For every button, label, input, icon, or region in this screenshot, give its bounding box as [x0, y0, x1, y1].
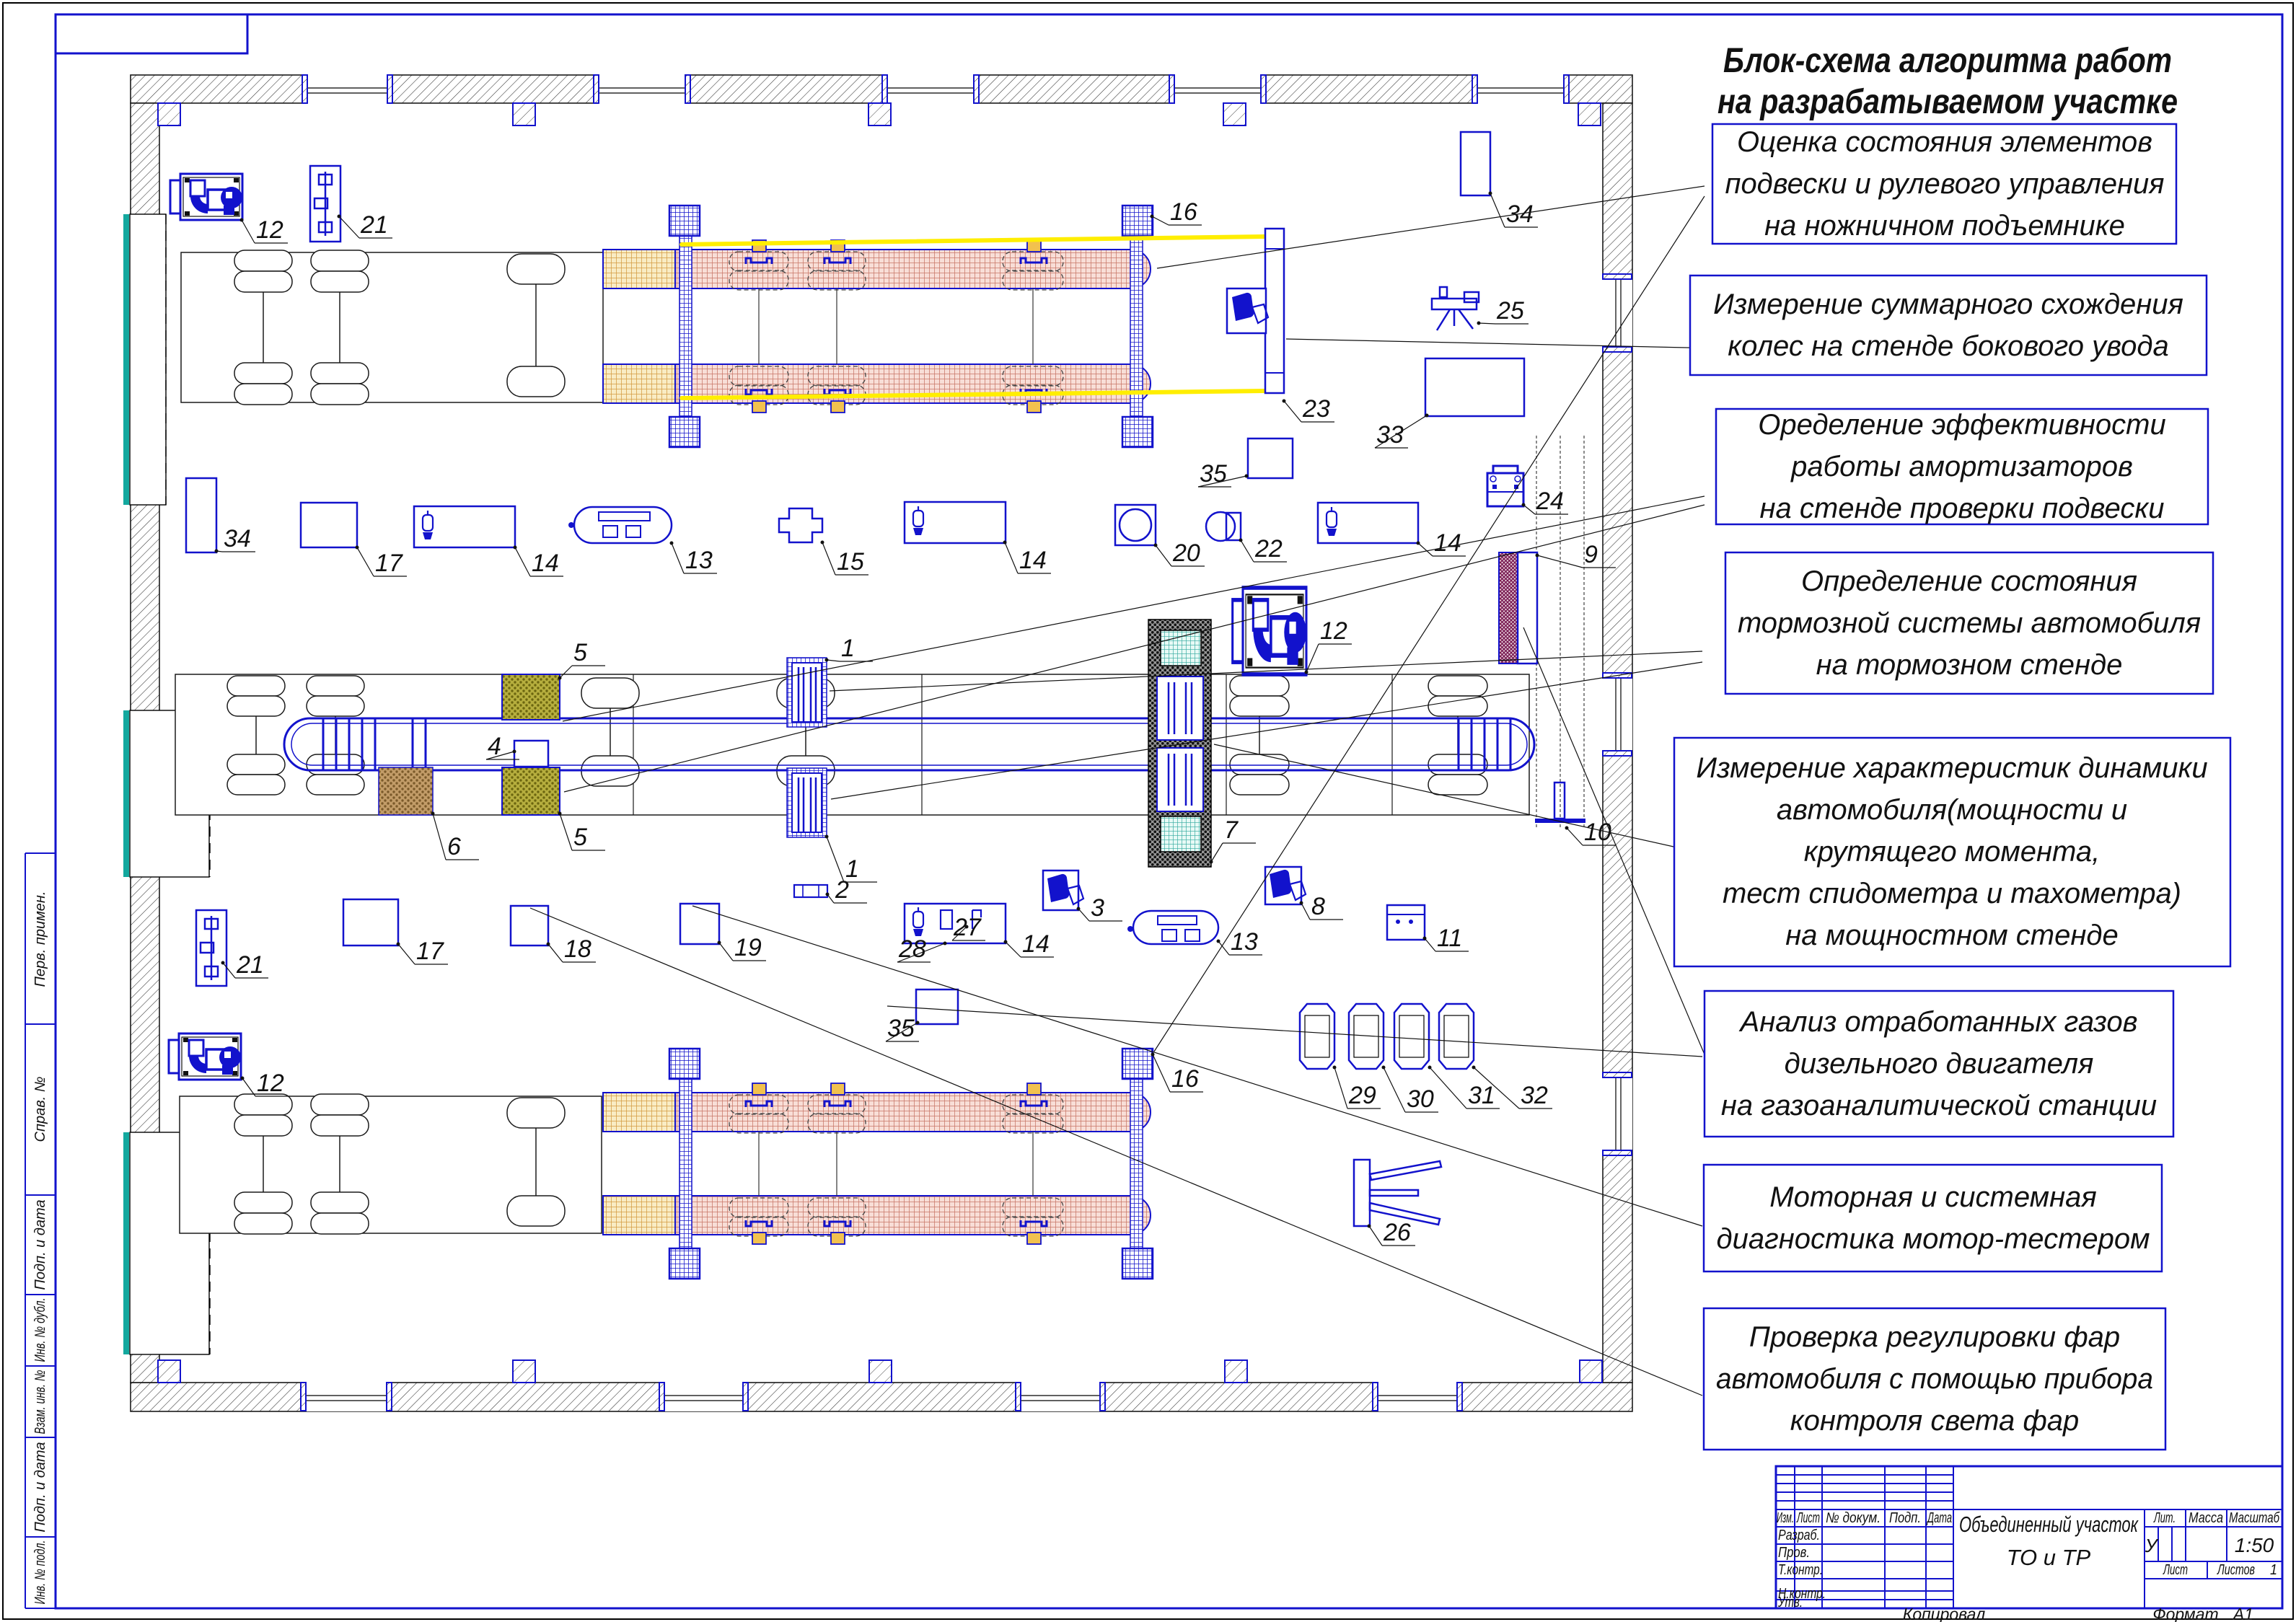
svg-text:5: 5 [573, 824, 587, 851]
svg-text:А1: А1 [2232, 1605, 2253, 1622]
svg-text:18: 18 [564, 935, 591, 963]
svg-text:20: 20 [1172, 539, 1200, 567]
svg-text:34: 34 [1506, 200, 1534, 228]
svg-text:5: 5 [573, 639, 587, 666]
svg-text:подвески и рулевого управления: подвески и рулевого управления [1725, 168, 2165, 200]
svg-text:6: 6 [447, 833, 461, 860]
svg-text:Изм.: Изм. [1777, 1510, 1794, 1526]
svg-text:Измерение суммарного схождения: Измерение суммарного схождения [1713, 288, 2183, 320]
svg-text:Масштаб: Масштаб [2229, 1510, 2280, 1526]
svg-text:Объединенный участок: Объединенный участок [1959, 1512, 2139, 1537]
svg-text:Определение состояния: Определение состояния [1801, 565, 2137, 597]
svg-text:Дата: Дата [1927, 1510, 1952, 1526]
svg-text:У: У [2145, 1535, 2159, 1556]
svg-text:23: 23 [1302, 395, 1330, 423]
svg-text:Разраб.: Разраб. [1778, 1528, 1820, 1543]
svg-text:Утв.: Утв. [1777, 1595, 1803, 1610]
svg-text:27: 27 [953, 914, 982, 941]
svg-text:10: 10 [1584, 819, 1611, 846]
svg-text:9: 9 [1584, 541, 1598, 568]
svg-text:17: 17 [416, 938, 444, 965]
svg-text:ТО и ТР: ТО и ТР [2007, 1545, 2091, 1570]
svg-text:Проверка регулировки фар: Проверка регулировки фар [1749, 1321, 2120, 1353]
svg-text:Лист: Лист [1796, 1510, 1820, 1526]
svg-text:1:50: 1:50 [2235, 1534, 2274, 1556]
svg-text:Моторная и системная: Моторная и системная [1769, 1181, 2096, 1213]
svg-text:колес на стенде бокового увода: колес на стенде бокового увода [1728, 330, 2169, 362]
svg-text:12: 12 [1320, 617, 1347, 645]
svg-text:контроля света фар: контроля света фар [1790, 1405, 2080, 1437]
svg-text:25: 25 [1496, 297, 1524, 325]
svg-text:16: 16 [1170, 198, 1197, 226]
svg-text:Подп. и дата: Подп. и дата [32, 1199, 48, 1290]
svg-text:автомобиля с помощью прибора: автомобиля с помощью прибора [1716, 1363, 2153, 1395]
svg-text:Т.контр.: Т.контр. [1778, 1562, 1823, 1578]
svg-text:на ножничном подъемнике: на ножничном подъемнике [1764, 210, 2125, 242]
svg-text:Инв. № дубл.: Инв. № дубл. [32, 1298, 48, 1362]
svg-text:14: 14 [1019, 547, 1047, 574]
svg-text:на мощностном стенде: на мощностном стенде [1785, 920, 2118, 951]
svg-text:15: 15 [837, 548, 864, 576]
svg-text:14: 14 [1022, 930, 1050, 958]
svg-text:Формат: Формат [2152, 1605, 2218, 1622]
svg-text:1: 1 [2270, 1562, 2277, 1578]
svg-text:1: 1 [841, 635, 855, 662]
svg-text:№ докум.: № докум. [1826, 1510, 1881, 1526]
svg-text:Измерение характеристик динами: Измерение характеристик динамики [1696, 752, 2207, 784]
svg-text:13: 13 [685, 547, 713, 574]
svg-text:Подп. и дата: Подп. и дата [32, 1442, 48, 1532]
svg-text:Подп.: Подп. [1889, 1510, 1921, 1526]
svg-text:29: 29 [1348, 1082, 1376, 1109]
svg-text:4: 4 [488, 733, 501, 760]
svg-text:21: 21 [236, 951, 264, 979]
svg-text:Лист: Лист [2163, 1562, 2188, 1578]
svg-text:Справ. №: Справ. № [32, 1077, 48, 1142]
svg-text:14: 14 [1434, 529, 1461, 557]
svg-text:Копировал: Копировал [1903, 1605, 1985, 1622]
svg-text:автомобиля(мощности и: автомобиля(мощности и [1777, 794, 2127, 826]
svg-text:26: 26 [1383, 1219, 1411, 1246]
svg-text:2: 2 [835, 876, 849, 904]
svg-text:17: 17 [375, 550, 403, 577]
svg-text:на газоаналитической станции: на газоаналитической станции [1721, 1090, 2157, 1121]
svg-text:30: 30 [1407, 1085, 1434, 1113]
svg-text:на разрабатываемом участке: на разрабатываемом участке [1717, 83, 2178, 121]
svg-text:Инв. № подл.: Инв. № подл. [32, 1541, 48, 1605]
svg-text:Пров.: Пров. [1778, 1545, 1810, 1561]
svg-text:13: 13 [1231, 928, 1258, 956]
svg-text:Оценка состояния элементов: Оценка состояния элементов [1737, 126, 2152, 158]
svg-text:12: 12 [256, 216, 283, 244]
svg-text:11: 11 [1437, 925, 1462, 952]
svg-text:дизельного двигателя: дизельного двигателя [1785, 1048, 2094, 1080]
svg-text:16: 16 [1171, 1065, 1199, 1093]
svg-text:31: 31 [1468, 1082, 1495, 1109]
svg-text:12: 12 [257, 1070, 284, 1097]
svg-text:Анализ отработанных газов: Анализ отработанных газов [1739, 1006, 2138, 1038]
svg-text:28: 28 [898, 935, 926, 963]
svg-text:Листов: Листов [2217, 1562, 2255, 1578]
svg-text:34: 34 [224, 525, 251, 552]
svg-text:тормозной системы автомобиля: тормозной системы автомобиля [1738, 607, 2201, 639]
svg-text:Взам. инв. №: Взам. инв. № [32, 1370, 48, 1434]
svg-text:Масса: Масса [2189, 1510, 2223, 1526]
svg-text:7: 7 [1224, 816, 1239, 844]
svg-text:32: 32 [1521, 1082, 1548, 1109]
svg-text:22: 22 [1254, 535, 1283, 563]
svg-text:крутящего момента,: крутящего момента, [1804, 836, 2101, 868]
svg-text:8: 8 [1311, 893, 1325, 920]
svg-text:Перв. примен.: Перв. примен. [32, 891, 48, 987]
svg-text:35: 35 [887, 1015, 915, 1042]
svg-text:на тормозном стенде: на тормозном стенде [1816, 649, 2123, 681]
svg-text:19: 19 [734, 934, 762, 961]
svg-text:тест спидометра и тахометра): тест спидометра и тахометра) [1723, 878, 2181, 909]
svg-text:33: 33 [1376, 421, 1404, 449]
svg-text:21: 21 [360, 211, 388, 239]
svg-text:работы амортизаторов: работы амортизаторов [1790, 451, 2133, 482]
svg-text:Лит.: Лит. [2153, 1510, 2176, 1526]
svg-text:24: 24 [1536, 488, 1564, 515]
svg-text:14: 14 [532, 550, 559, 577]
svg-text:на стенде проверки подвески: на стенде проверки подвески [1760, 493, 2165, 524]
svg-text:Оределение эффективности: Оределение эффективности [1758, 409, 2165, 441]
svg-text:35: 35 [1200, 460, 1227, 488]
svg-text:диагностика мотор-тестером: диагностика мотор-тестером [1717, 1223, 2150, 1255]
svg-text:Блок-схема алгоритма работ: Блок-схема алгоритма работ [1723, 42, 2172, 80]
svg-text:3: 3 [1091, 894, 1104, 922]
